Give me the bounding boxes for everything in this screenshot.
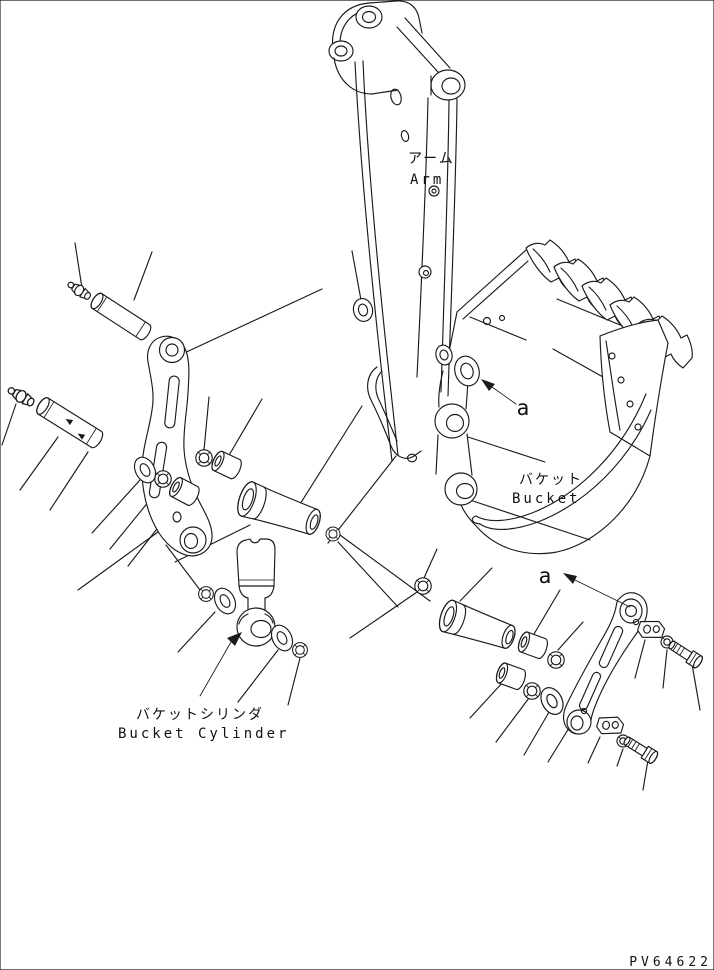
grease-fitting-lower bbox=[6, 384, 37, 409]
o-ring-1 bbox=[155, 471, 171, 487]
parts-diagram-page: アーム Arm バケット Bucket バケットシリンダ Bucket Cyli… bbox=[0, 0, 714, 970]
bucket-label-en: Bucket bbox=[512, 491, 581, 507]
view-marker-a-2 bbox=[563, 573, 630, 607]
arm-beam-left-edge bbox=[355, 62, 392, 461]
thrust-washer-4 bbox=[537, 684, 568, 718]
arrowhead-icon bbox=[481, 379, 495, 391]
arm-label-jp: アーム bbox=[408, 151, 455, 167]
o-ring-2 bbox=[196, 450, 212, 466]
page-background bbox=[0, 0, 714, 970]
pivot-pin-upper bbox=[89, 291, 153, 341]
bucket-cylinder-label-jp: バケットシリンダ bbox=[136, 707, 264, 723]
o-ring-6 bbox=[524, 683, 540, 699]
lock-bolt-upper bbox=[666, 638, 704, 669]
bucket-cylinder-rod bbox=[237, 539, 275, 646]
o-ring-3 bbox=[326, 527, 340, 541]
pin-lock-block-upper bbox=[636, 618, 665, 642]
view-marker-a-1 bbox=[481, 379, 516, 404]
center-link-rear bbox=[436, 598, 519, 654]
bucket-label-jp: バケット bbox=[519, 472, 583, 488]
o-ring-arm bbox=[351, 297, 374, 323]
bushing-2 bbox=[209, 450, 243, 481]
arrowhead-icon bbox=[227, 632, 242, 646]
side-link-right bbox=[564, 593, 648, 734]
bucket-cylinder-label-en: Bucket Cylinder bbox=[118, 726, 289, 742]
side-cutter bbox=[600, 320, 668, 456]
drawing-code: PV64622 bbox=[629, 955, 712, 970]
side-link-left bbox=[142, 336, 212, 556]
bucket-cylinder-pointer bbox=[200, 632, 242, 696]
section-marker-a-2: a bbox=[539, 564, 552, 588]
section-marker-a-1: a bbox=[517, 396, 530, 420]
center-link-front bbox=[234, 480, 325, 541]
grease-fitting-upper bbox=[65, 279, 92, 302]
pivot-pin-lower bbox=[34, 396, 105, 450]
diagram-canvas: アーム Arm バケット Bucket バケットシリンダ Bucket Cyli… bbox=[0, 0, 714, 970]
leader-lines bbox=[2, 243, 700, 790]
pin-lock-block-lower bbox=[596, 714, 625, 737]
o-ring-4 bbox=[415, 578, 431, 594]
o-ring-5 bbox=[548, 652, 564, 668]
section-boss-ring bbox=[451, 353, 483, 389]
lock-bolt-lower bbox=[622, 734, 660, 765]
bushing-3 bbox=[516, 631, 549, 660]
arm-label-en: Arm bbox=[410, 172, 444, 188]
o-ring-7 bbox=[199, 587, 214, 602]
arrowhead-icon bbox=[563, 573, 577, 584]
o-ring-8 bbox=[293, 643, 308, 658]
